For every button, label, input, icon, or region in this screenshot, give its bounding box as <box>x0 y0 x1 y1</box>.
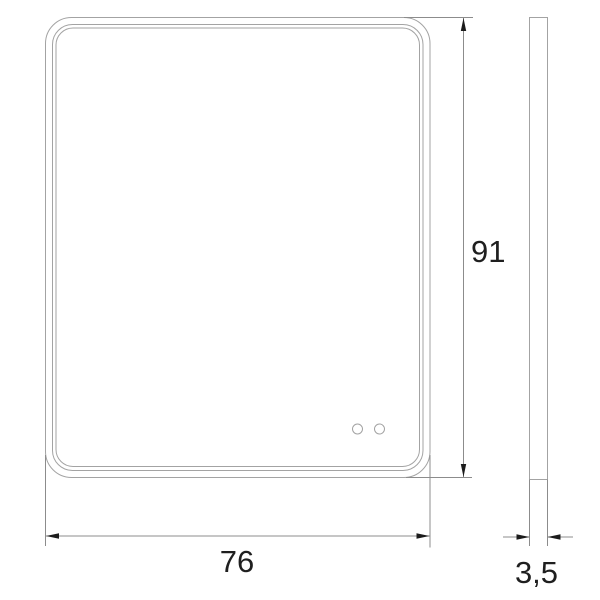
arrowhead-height-top <box>461 18 466 31</box>
arrowhead-width-right <box>417 533 430 538</box>
arrowhead-height-bottom <box>461 464 466 477</box>
touch-sensor-circle-right <box>375 424 385 434</box>
arrowhead-depth-right <box>548 534 561 539</box>
height-dimension-label: 91 <box>471 234 505 269</box>
technical-drawing: 91 76 3,5 <box>0 0 600 600</box>
dimension-lines <box>46 18 574 538</box>
touch-sensor-circle-left <box>353 424 363 434</box>
side-view <box>530 18 548 480</box>
drawing-canvas: 91 76 3,5 <box>0 0 600 600</box>
arrowhead-depth-left <box>517 534 530 539</box>
front-view-inner-outline-2 <box>56 28 420 467</box>
arrowhead-width-left <box>46 533 59 538</box>
front-view-inner-outline-1 <box>53 25 424 471</box>
side-view-outline <box>530 18 548 480</box>
extension-lines <box>46 18 548 548</box>
front-view <box>46 18 431 478</box>
depth-dimension-label: 3,5 <box>515 555 558 590</box>
front-view-outer-outline <box>46 18 431 478</box>
arrowheads <box>46 18 561 540</box>
width-dimension-label: 76 <box>220 544 254 579</box>
